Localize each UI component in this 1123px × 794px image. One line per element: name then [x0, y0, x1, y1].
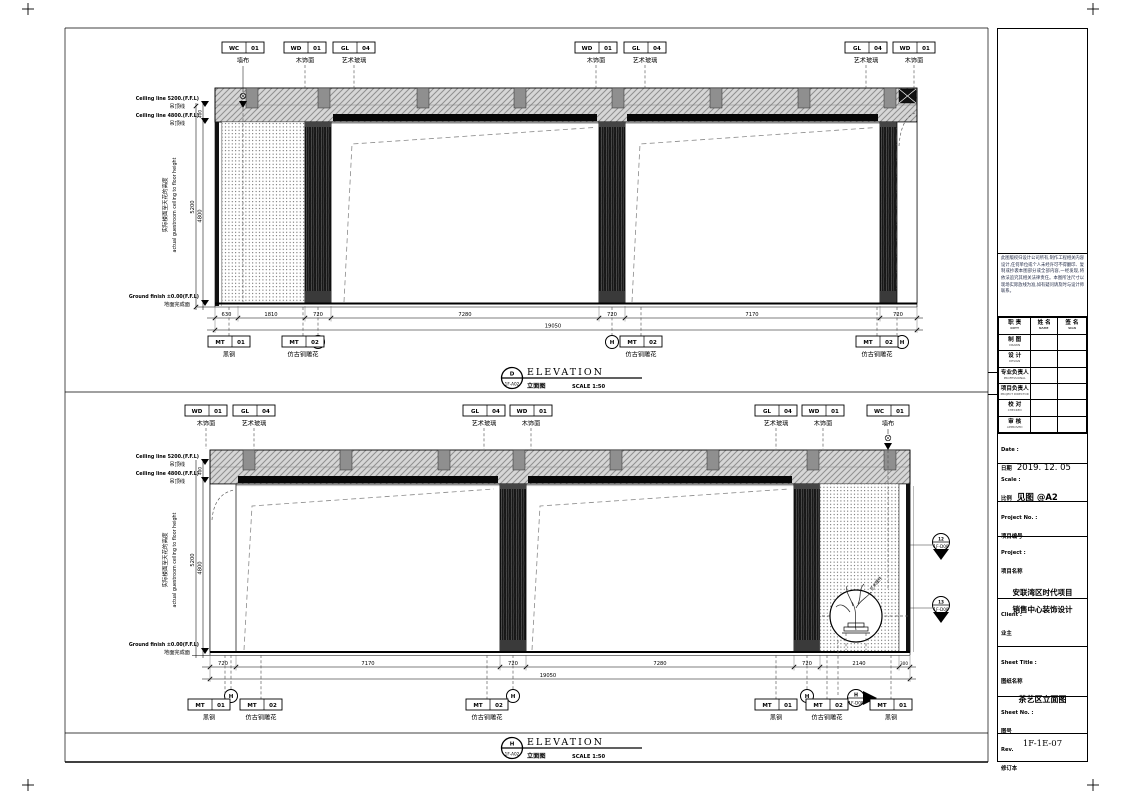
- material-code: WC: [229, 46, 239, 52]
- material-code: MT: [247, 703, 256, 709]
- project-no-row: Project No. : 项目编号: [998, 501, 1087, 536]
- material-number: 02: [269, 703, 277, 709]
- rev-row: Rev. 修订本: [998, 733, 1087, 763]
- material-number: 04: [492, 409, 500, 415]
- material-code: MT: [195, 703, 204, 709]
- col-header-signature: 签 名SIGN: [1057, 318, 1086, 335]
- dim-5200: 5200: [190, 553, 196, 566]
- material-code: MT: [762, 703, 771, 709]
- side-note-en: actual guestroom ceiling to floor height: [172, 157, 178, 252]
- material-number: 04: [874, 46, 882, 52]
- dim-400: 400: [198, 467, 203, 475]
- grid-bubble: H: [507, 690, 520, 703]
- elevation-title-scale: SCALE 1:50: [572, 384, 606, 390]
- ceiling-line-1-label: Ceiling line 5200.(F.F.L): [136, 454, 199, 460]
- wood-door-panel: [897, 122, 917, 303]
- material-label: 仿古铜雕花: [246, 714, 277, 722]
- material-label: 仿古铜雕花: [812, 714, 843, 722]
- material-tag: WD01木饰面: [575, 42, 617, 88]
- table-row-approved: 审 核APPROVED: [999, 416, 1087, 432]
- material-tag: MT02仿古铜雕花: [240, 699, 282, 722]
- material-tag: MT01黑钢: [188, 699, 230, 722]
- opening-direction-dashes: [632, 128, 876, 303]
- material-code: GL: [763, 409, 772, 415]
- material-number: 01: [217, 703, 225, 709]
- material-code: GL: [853, 46, 862, 52]
- material-number: 04: [262, 409, 270, 415]
- marker-sheet: 1F-D08: [848, 701, 863, 706]
- dim-total: 19050: [545, 324, 562, 330]
- material-tag: MT02仿古铜雕花: [856, 336, 898, 359]
- ceiling-line-1-label: Ceiling line 5200.(F.F.L): [136, 96, 199, 102]
- scale-label-en: Scale :: [1001, 477, 1021, 483]
- elevation-title-scale: SCALE 1:50: [572, 754, 606, 760]
- material-tag: MT01黑钢: [208, 336, 250, 359]
- material-number: 02: [495, 703, 503, 709]
- ground-finish-label: Ground finish ±0.00(F.F.L): [129, 294, 199, 300]
- material-number: 01: [214, 409, 222, 415]
- material-number: 01: [237, 340, 245, 346]
- material-label: 木饰面: [522, 420, 541, 428]
- material-label: 艺术玻璃: [854, 57, 879, 65]
- marker-sheet: 1F-D08: [933, 607, 948, 612]
- side-note-cn: 实际楼面至天花的高度: [161, 532, 169, 588]
- material-tag: WC01墙布: [867, 405, 909, 428]
- table-row-checked: 校 对CHECKED: [999, 400, 1087, 416]
- side-note-en: actual guestroom ceiling to floor height: [172, 512, 178, 607]
- bronze-carved-column: [794, 484, 820, 652]
- ceiling-line-1-cn: 吊顶线: [169, 102, 185, 110]
- material-label: 黑钢: [770, 714, 782, 722]
- material-code: WD: [517, 409, 528, 415]
- material-number: 02: [885, 340, 893, 346]
- grid-bubble: H: [606, 336, 619, 349]
- rev-label-cn: 修订本: [1001, 766, 1017, 772]
- material-label: 仿古铜雕花: [626, 351, 657, 359]
- material-code: MT: [863, 340, 872, 346]
- material-number: 01: [313, 46, 321, 52]
- material-tag: GL04艺术玻璃: [755, 405, 797, 449]
- material-label: 黑钢: [885, 714, 897, 722]
- dim-label: 2140: [852, 661, 865, 667]
- material-code: MT: [627, 340, 636, 346]
- rev-label-en: Rev.: [1001, 747, 1013, 753]
- material-code: WC: [874, 409, 884, 415]
- material-label: 艺术玻璃: [633, 57, 658, 65]
- material-tag: WC01墙布: [222, 42, 264, 65]
- title-ref-sheet: 1F-A02: [505, 752, 520, 757]
- material-code: MT: [289, 340, 298, 346]
- logo-area: [998, 29, 1087, 253]
- material-number: 04: [784, 409, 792, 415]
- dim-label: 7170: [745, 312, 758, 318]
- material-label: 艺术玻璃: [342, 57, 367, 65]
- side-note-cn: 实际楼面至天花的高度: [161, 177, 169, 233]
- ceiling-line-2-cn: 吊顶线: [169, 119, 185, 127]
- material-tag: GL04艺术玻璃: [624, 42, 666, 88]
- light-cove: [238, 476, 498, 483]
- material-number: 01: [896, 409, 904, 415]
- title-block-tick: [988, 372, 997, 373]
- material-number: 02: [835, 703, 843, 709]
- bronze-carved-column: [305, 122, 331, 303]
- material-number: 02: [311, 340, 319, 346]
- material-tag: MT01黑钢: [870, 699, 912, 722]
- elevation-title-1: D 1F-A02 ELEVATION 立面图 SCALE 1:50: [502, 367, 643, 390]
- elevation-title-text: ELEVATION: [527, 367, 604, 378]
- title-ref-letter: D: [510, 372, 515, 378]
- material-code: GL: [341, 46, 350, 52]
- material-number: 02: [649, 340, 657, 346]
- light-cove: [333, 114, 597, 121]
- title-block-tick: [988, 394, 997, 395]
- project-row: Project : 项目名称 安联湾区时代项目 销售中心装饰设计: [998, 536, 1087, 598]
- dim-400: 400: [198, 110, 203, 118]
- date-row: Date : 日期 2019. 12. 05: [998, 433, 1087, 463]
- client-label-en: Client :: [1001, 612, 1022, 618]
- opening-direction-dashes: [244, 489, 494, 650]
- material-label: 艺术玻璃: [242, 420, 267, 428]
- grid-letter: H: [511, 694, 516, 700]
- detail-marker-13: 13 1F-D08: [910, 597, 950, 624]
- material-number: 04: [653, 46, 661, 52]
- wallcovering-panel: [222, 122, 305, 303]
- table-row-project-director: 项目负责人PROJECT DIRECTOR: [999, 383, 1087, 399]
- detail-marker-12: 12 1F-D08: [910, 534, 950, 561]
- grid-letter: H: [610, 340, 615, 346]
- dim-label: 7170: [361, 661, 374, 667]
- vertical-dimensions: 5200 4800 400 实际楼面至天花的高度 actual guestroo…: [161, 103, 204, 310]
- opening-direction-dashes: [532, 489, 789, 650]
- marker-sheet: 1F-D08: [933, 544, 948, 549]
- wall-section-edge: [906, 484, 910, 652]
- material-label: 仿古铜雕花: [862, 351, 893, 359]
- material-tag: MT01黑钢: [755, 699, 797, 722]
- material-code: WD: [809, 409, 820, 415]
- marker-number: 13: [938, 600, 944, 605]
- dimension-row: 720 7170 720 7280 720 2140 300 19050: [202, 655, 916, 682]
- table-row-design: 设 计DESIGN: [999, 351, 1087, 367]
- wall-section-edge: [215, 122, 219, 306]
- material-tag: GL04艺术玻璃: [463, 405, 505, 449]
- bronze-carved-column: [880, 122, 897, 303]
- material-tag: MT02仿古铜雕花: [282, 336, 324, 359]
- material-code: WD: [291, 46, 302, 52]
- date-label-en: Date :: [1001, 447, 1019, 453]
- personnel-table: 职 责DUTY 姓 名NAME 签 名SIGN 制 图DRAWN 设 计DESI…: [998, 316, 1087, 433]
- grid-letter: H: [900, 340, 905, 346]
- ceiling-line-1-cn: 吊顶线: [169, 460, 185, 468]
- material-tag: WD01木饰面: [284, 42, 326, 88]
- material-tag: MT02仿古铜雕花: [806, 699, 848, 722]
- material-label: 艺术玻璃: [764, 420, 789, 428]
- material-tag: MT02仿古铜雕花: [620, 336, 662, 359]
- dim-label: 630: [222, 312, 232, 318]
- copyright-notes-text: 此图版权归设计公司所有,制作工程相关内容设计,任何单位或个人未经许可不得翻印、复…: [1001, 256, 1084, 296]
- material-code: WD: [192, 409, 203, 415]
- dimension-row: 630 1810 720 7280 720 7170 720 19050: [207, 306, 923, 333]
- light-cove: [528, 476, 792, 483]
- material-label: 仿古铜雕花: [288, 351, 319, 359]
- material-number: 01: [251, 46, 259, 52]
- material-code: MT: [877, 703, 886, 709]
- material-tag: WD01木饰面: [510, 405, 552, 449]
- material-number: 01: [539, 409, 547, 415]
- material-label: 墙布: [237, 57, 249, 65]
- material-number: 04: [362, 46, 370, 52]
- material-label: 艺术玻璃: [472, 420, 497, 428]
- elevation-title-2: H 1F-A02 ELEVATION 立面图 SCALE 1:50: [502, 737, 643, 760]
- elevation-title-text: ELEVATION: [527, 737, 604, 748]
- sheet-title-label-en: Sheet Title :: [1001, 660, 1037, 666]
- drawing-sheet: WC01墙布 WD01木饰面 GL04艺术玻璃 WD01木饰面 GL04艺术玻璃…: [0, 0, 1123, 794]
- material-code: GL: [471, 409, 480, 415]
- ground-finish-label: Ground finish ±0.00(F.F.L): [129, 642, 199, 648]
- opening-direction-dashes: [344, 128, 594, 303]
- scale-row: Scale : 比例 见图 @A2: [998, 463, 1087, 501]
- table-row-drawn: 制 图DRAWN: [999, 335, 1087, 351]
- project-label-cn: 项目名称: [1001, 569, 1023, 575]
- sheet-no-label-en: Sheet No. :: [1001, 710, 1034, 716]
- material-code: WD: [582, 46, 593, 52]
- material-label: 木饰面: [905, 57, 924, 65]
- table-row-professional: 专业负责人PROFESSIONAL: [999, 367, 1087, 383]
- material-label: 木饰面: [814, 420, 833, 428]
- material-label: 木饰面: [587, 57, 606, 65]
- dim-label: 720: [218, 661, 228, 667]
- ground-finish-cn: 地面完成面: [164, 648, 190, 656]
- material-number: 01: [899, 703, 907, 709]
- material-number: 01: [831, 409, 839, 415]
- bronze-carved-column: [500, 484, 526, 652]
- dim-5200: 5200: [190, 200, 196, 213]
- title-ref-sheet: 1F-A02: [505, 382, 520, 387]
- title-ref-letter: H: [510, 742, 515, 748]
- dim-4800: 4800: [198, 209, 204, 222]
- elevation-drawing-canvas: WC01墙布 WD01木饰面 GL04艺术玻璃 WD01木饰面 GL04艺术玻璃…: [0, 0, 1123, 794]
- dim-label: 720: [893, 312, 903, 318]
- elevation-2: 艺术摆件 WD01木饰面 GL04艺术玻璃 GL04艺术玻璃 WD01木饰面 G…: [129, 405, 950, 760]
- bronze-carved-column: [599, 122, 625, 303]
- material-number: 01: [604, 46, 612, 52]
- dim-label: 1810: [264, 312, 277, 318]
- client-row: Client : 业主: [998, 598, 1087, 646]
- material-code: MT: [813, 703, 822, 709]
- elevation-title-cn: 立面图: [527, 382, 546, 390]
- material-code: WD: [900, 46, 911, 52]
- dim-label: 7280: [458, 312, 471, 318]
- ground-finish-cn: 地面完成面: [164, 300, 190, 308]
- material-tag: GL04艺术玻璃: [845, 42, 887, 88]
- material-label: 黑钢: [223, 351, 235, 359]
- material-tag: MT02仿古铜雕花: [466, 699, 508, 722]
- material-code: GL: [632, 46, 641, 52]
- client-label-cn: 业主: [1001, 631, 1012, 637]
- material-label: 黑钢: [203, 714, 215, 722]
- sheet-title-row: Sheet Title : 图纸名称 茶艺区立面图: [998, 646, 1087, 696]
- material-tag: WD01木饰面: [185, 405, 227, 449]
- material-label: 木饰面: [197, 420, 216, 428]
- material-tag: GL04艺术玻璃: [333, 42, 375, 88]
- material-tag: WD01木饰面: [802, 405, 844, 449]
- material-number: 01: [922, 46, 930, 52]
- elevation-1: WC01墙布 WD01木饰面 GL04艺术玻璃 WD01木饰面 GL04艺术玻璃…: [129, 42, 935, 390]
- material-label: 仿古铜雕花: [472, 714, 503, 722]
- copyright-notes: 此图版权归设计公司所有,制作工程相关内容设计,任何单位或个人未经许可不得翻印、复…: [998, 253, 1087, 316]
- material-code: MT: [473, 703, 482, 709]
- sheet-no-row: Sheet No. : 图号 1F-1E-07: [998, 696, 1087, 733]
- sheet-title-label-cn: 图纸名称: [1001, 679, 1023, 685]
- dim-label: 300: [900, 661, 908, 666]
- material-number: 01: [784, 703, 792, 709]
- material-tag: GL04艺术玻璃: [233, 405, 275, 449]
- material-tag: WD01木饰面: [893, 42, 935, 88]
- light-cove: [627, 114, 878, 121]
- ceiling-line-2-label: Ceiling line 4800.(F.F.L): [136, 113, 199, 119]
- marker-letter: H: [854, 693, 858, 699]
- ceiling-line-2-cn: 吊顶线: [169, 477, 185, 485]
- dim-total: 19050: [540, 673, 557, 679]
- project-no-label-en: Project No. :: [1001, 515, 1037, 521]
- vertical-dimensions: 5200 4800 400 实际楼面至天花的高度 actual guestroo…: [161, 460, 204, 658]
- col-header-duty: 职 责DUTY: [999, 318, 1031, 335]
- title-block: 此图版权归设计公司所有,制作工程相关内容设计,任何单位或个人未经许可不得翻印、复…: [997, 28, 1088, 762]
- material-code: MT: [215, 340, 224, 346]
- dim-4800: 4800: [198, 561, 204, 574]
- material-label: 木饰面: [296, 57, 315, 65]
- project-label-en: Project :: [1001, 550, 1026, 556]
- marker-number: 12: [938, 537, 944, 542]
- material-label: 墙布: [882, 420, 894, 428]
- col-header-name: 姓 名NAME: [1031, 318, 1057, 335]
- material-code: GL: [241, 409, 250, 415]
- elevation-title-cn: 立面图: [527, 752, 546, 760]
- dim-label: 7280: [653, 661, 666, 667]
- ceiling-line-2-label: Ceiling line 4800.(F.F.L): [136, 471, 199, 477]
